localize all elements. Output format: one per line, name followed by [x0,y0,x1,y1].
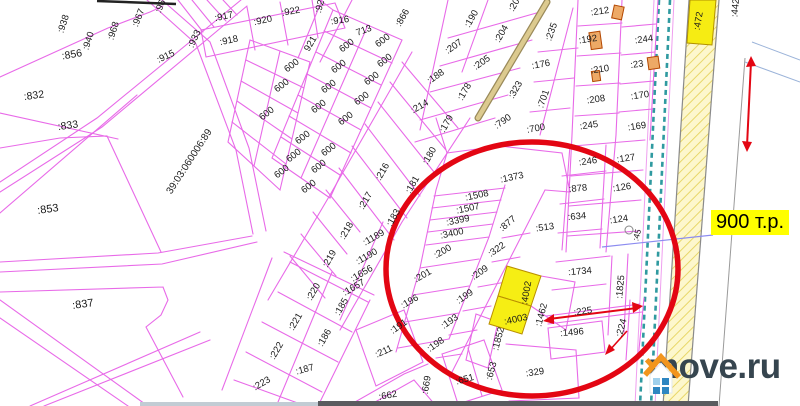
building-icon [591,70,600,81]
building-icon [612,5,624,20]
price-tag: 900 т.р. [711,210,789,235]
cadastral-map: :856:938:940:968:967:966:933:915:832:833… [0,0,800,406]
road-strip [663,0,800,406]
bottom-bar-light [140,402,318,406]
building-icon [647,56,660,69]
parcel-boundaries [0,0,658,406]
parcel-472-highlight [687,0,716,45]
selected-parcels [489,266,541,334]
bottom-bar-dark [318,401,718,406]
move-logo-house-icon [642,350,682,398]
building-icon [589,31,602,49]
watermark: move.ru [642,350,781,383]
highlight-circle [386,142,678,396]
map-geometry [0,0,800,406]
well-symbol [625,226,633,234]
building-icons [589,5,660,81]
